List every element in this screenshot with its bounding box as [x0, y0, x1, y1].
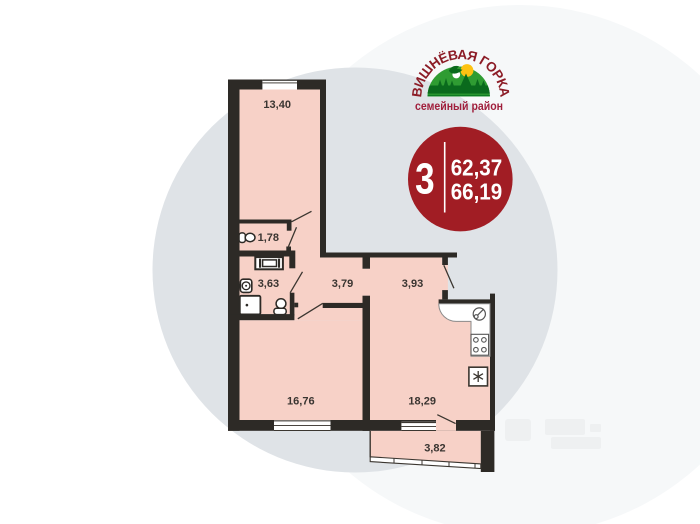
- svg-text:3,63: 3,63: [258, 278, 279, 290]
- svg-text:3,82: 3,82: [424, 442, 445, 454]
- svg-text:3,93: 3,93: [402, 278, 423, 290]
- svg-text:62,37: 62,37: [451, 154, 503, 180]
- svg-text:66,19: 66,19: [451, 179, 503, 205]
- svg-text:1,78: 1,78: [258, 232, 279, 244]
- svg-text:семейный район: семейный район: [415, 101, 503, 113]
- svg-text:16,76: 16,76: [287, 396, 315, 408]
- svg-text:18,29: 18,29: [408, 396, 436, 408]
- svg-text:3: 3: [415, 155, 435, 204]
- svg-text:3,79: 3,79: [332, 278, 353, 290]
- svg-text:13,40: 13,40: [263, 99, 291, 111]
